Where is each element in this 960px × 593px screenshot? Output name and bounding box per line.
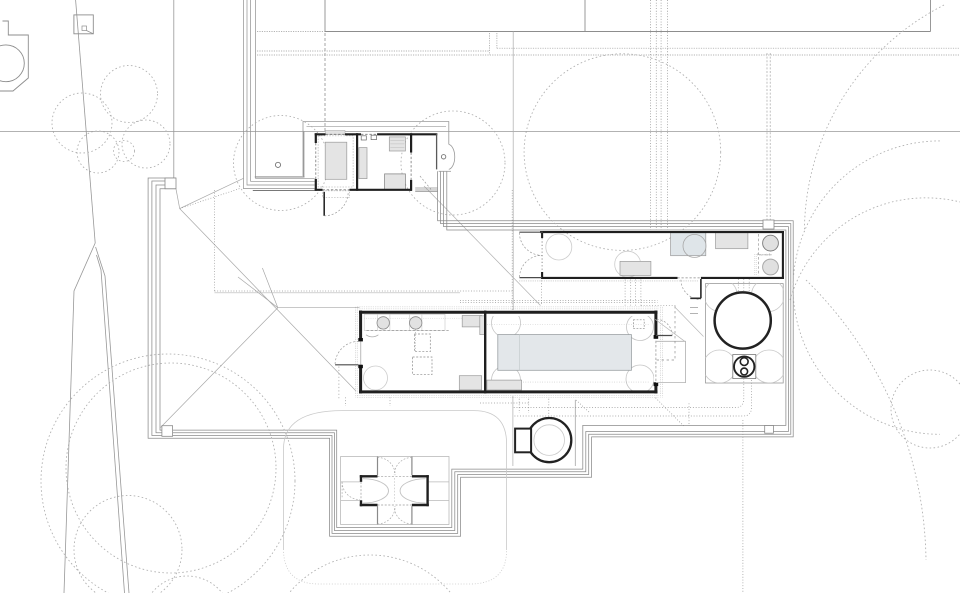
svg-text:Feuerstelle: Feuerstelle [757,252,772,256]
